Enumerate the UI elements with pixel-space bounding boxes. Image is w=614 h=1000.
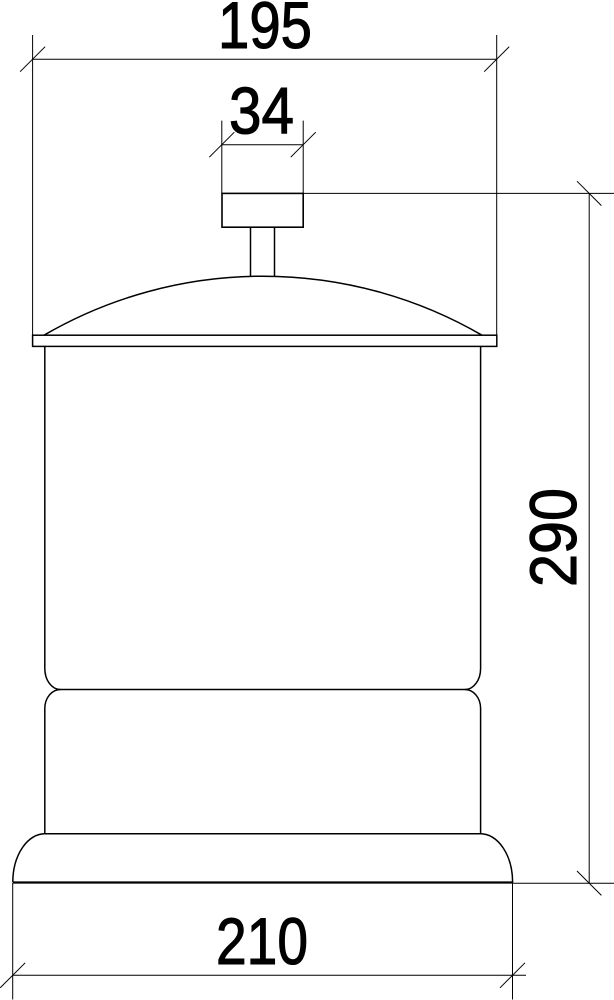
svg-text:34: 34 <box>229 74 294 148</box>
svg-text:210: 210 <box>216 904 308 978</box>
svg-text:195: 195 <box>218 0 312 62</box>
svg-text:290: 290 <box>516 488 590 587</box>
